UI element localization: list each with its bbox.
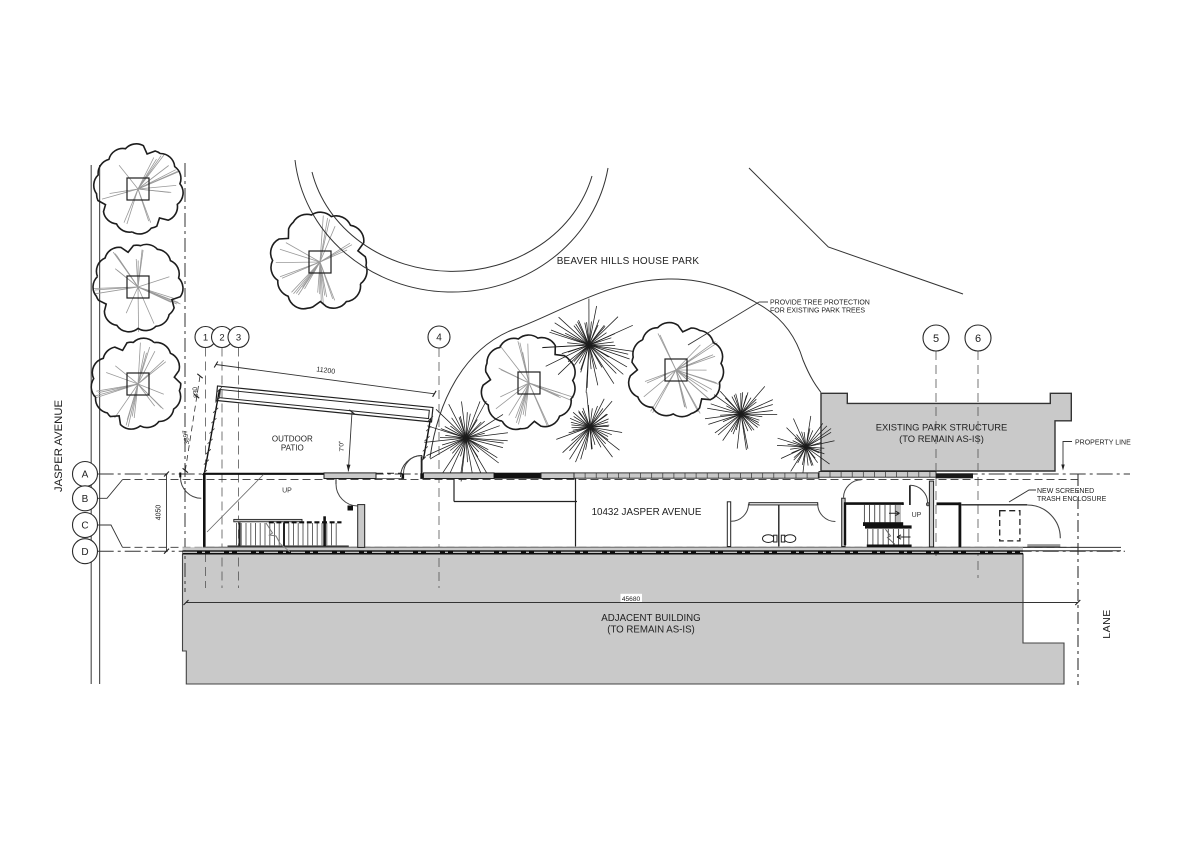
- svg-text:ADJACENT BUILDING: ADJACENT BUILDING: [601, 613, 700, 624]
- svg-text:7'0": 7'0": [338, 440, 346, 452]
- svg-text:OUTDOOR: OUTDOOR: [272, 434, 313, 443]
- svg-text:45680: 45680: [622, 596, 641, 603]
- svg-text:1: 1: [203, 333, 208, 344]
- svg-text:6: 6: [975, 333, 981, 345]
- svg-text:FOR EXISTING PARK TREES: FOR EXISTING PARK TREES: [770, 307, 865, 314]
- svg-text:UP: UP: [912, 512, 922, 519]
- svg-text:(TO REMAIN AS-IS): (TO REMAIN AS-IS): [607, 624, 695, 635]
- svg-text:UP: UP: [282, 488, 292, 495]
- svg-text:2: 2: [219, 333, 224, 344]
- svg-text:D: D: [81, 547, 88, 558]
- svg-text:A: A: [82, 470, 89, 481]
- svg-text:PROVIDE TREE PROTECTION: PROVIDE TREE PROTECTION: [770, 299, 870, 306]
- svg-text:EXISTING PARK STRUCTURE: EXISTING PARK STRUCTURE: [876, 421, 1008, 432]
- svg-text:10432 JASPER AVENUE: 10432 JASPER AVENUE: [592, 507, 702, 518]
- svg-text:PROPERTY LINE: PROPERTY LINE: [1075, 439, 1131, 446]
- svg-text:JASPER AVENUE: JASPER AVENUE: [53, 400, 65, 493]
- svg-text:4050: 4050: [156, 505, 163, 521]
- svg-text:PATIO: PATIO: [281, 443, 304, 452]
- svg-text:B: B: [82, 494, 89, 505]
- svg-text:5: 5: [933, 333, 939, 345]
- svg-text:4: 4: [436, 333, 442, 344]
- svg-text:C: C: [81, 521, 88, 532]
- svg-text:3: 3: [236, 333, 241, 344]
- svg-text:NEW SCREENED: NEW SCREENED: [1037, 488, 1094, 495]
- svg-text:LANE: LANE: [1101, 609, 1113, 638]
- svg-text:(TO REMAIN AS-IS): (TO REMAIN AS-IS): [899, 433, 984, 444]
- svg-text:BEAVER HILLS HOUSE PARK: BEAVER HILLS HOUSE PARK: [557, 256, 700, 267]
- svg-text:TRASH ENCLOSURE: TRASH ENCLOSURE: [1037, 496, 1107, 503]
